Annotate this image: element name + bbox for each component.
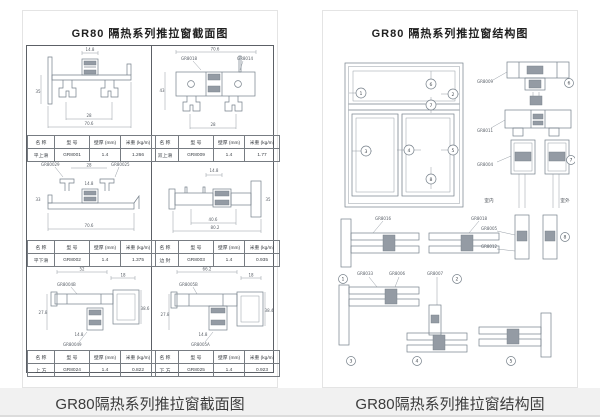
dimension-label: 33 <box>35 197 41 202</box>
dimension-label: 28 <box>86 113 92 118</box>
profile-drawing-gr8009: 70.6 GR8018 GR8014 43 28 <box>151 46 275 135</box>
profile-drawing-gr8003: 14.8 35 40.6 80.2 <box>151 159 275 240</box>
callout-label: GR8007 <box>427 271 444 276</box>
section-marker: 2 <box>456 277 459 283</box>
spec-cell-name: 下 方 <box>152 364 179 377</box>
callout-label: GR8016 <box>375 216 392 221</box>
dimension-label: 18 <box>120 273 126 278</box>
spec-header-thickness: 壁厚 (mm) <box>90 351 121 364</box>
section-marker: 6 <box>568 81 571 87</box>
spec-header-model: 型 号 <box>179 136 214 149</box>
section-marker: 1 <box>342 277 345 283</box>
spec-cell-name: 平上滑 <box>28 149 55 162</box>
dimension-label: 14.8 <box>210 168 219 173</box>
horizontal-sections-drawing: GR8016 GR8018 GR8005 GR8012 8 1 GR8033 G… <box>329 209 573 377</box>
svg-text:6: 6 <box>430 82 433 88</box>
spec-cell-model: GR8009 <box>179 149 214 162</box>
dimension-label: 28 <box>210 122 216 127</box>
spec-table-gr8024: 名 称 型 号 壁厚 (mm) 米重 (kg/m) 上 方 GR8024 1.4… <box>27 350 156 377</box>
spec-cell-name: 边 封 <box>152 254 179 267</box>
dimension-label: 14.8 <box>75 332 84 337</box>
dimension-label: 14.8 <box>85 181 94 186</box>
window-elevation-drawing: 1 2 3 4 5 6 7 8 <box>341 59 469 211</box>
section-marker: 4 <box>416 359 419 365</box>
room-side-label: 室内 <box>484 197 494 204</box>
dimension-label: 35 <box>265 197 271 202</box>
spec-header-name: 名 称 <box>28 241 55 254</box>
spec-header-model: 型 号 <box>55 136 90 149</box>
dimension-label: 14.8 <box>86 47 95 52</box>
spec-table-gr8002: 名 称 型 号 壁厚 (mm) 米重 (kg/m) 平下滑 GR8002 1.4… <box>27 240 156 267</box>
section-marker: 5 <box>510 359 513 365</box>
dimension-label: 38.4 <box>265 308 274 313</box>
svg-text:4: 4 <box>408 148 411 154</box>
spec-cell-weight: 0.935 <box>245 254 280 267</box>
dimension-label: 27.8 <box>161 312 170 317</box>
dimension-label: 70.6 <box>85 223 94 228</box>
spec-cell-model: GR8024 <box>55 364 90 377</box>
svg-text:8: 8 <box>430 177 433 183</box>
spec-header-model: 型 号 <box>55 351 90 364</box>
dimension-label: 52 <box>79 267 85 272</box>
svg-text:3: 3 <box>365 149 368 155</box>
callout-label: GR80025 <box>111 162 130 167</box>
spec-table-gr8001: 名 称 型 号 壁厚 (mm) 米重 (kg/m) 平上滑 GR8001 1.4… <box>27 135 156 162</box>
spec-header-model: 型 号 <box>179 241 214 254</box>
dimension-label: 38.6 <box>141 306 150 311</box>
callout-label: GR8005B <box>179 282 198 287</box>
section-marker: 8 <box>564 235 567 241</box>
profile-drawing-gr8024: 52 18 GR8004B 27.8 14.8 38.6 GR80049 <box>27 264 151 350</box>
spec-header-weight: 米重 (kg/m) <box>245 351 280 364</box>
section-diagram-image[interactable]: GR80 隔热系列推拉窗截面图 14.8 35 28 70.6 <box>22 10 278 388</box>
spec-header-name: 名 称 <box>28 136 55 149</box>
callout-label: GR8006 <box>389 271 406 276</box>
vertical-sections-drawing: GR8009 6 GR8011 GR8004 7 室内 室外 <box>475 56 575 214</box>
dimension-label: 18 <box>248 273 254 278</box>
dimension-label: 14.8 <box>199 332 208 337</box>
room-side-label: 室外 <box>560 197 570 204</box>
spec-header-model: 型 号 <box>55 241 90 254</box>
left-image-caption: GR80隔热系列推拉窗截面图 <box>0 393 300 414</box>
svg-text:2: 2 <box>452 92 455 98</box>
spec-cell-model: GR8001 <box>55 149 90 162</box>
elevation-marker: 1 2 3 4 5 6 7 8 <box>356 79 458 184</box>
dimension-label: 70.6 <box>85 121 94 126</box>
spec-header-thickness: 壁厚 (mm) <box>90 136 121 149</box>
callout-label: GR8005 <box>481 226 498 231</box>
spec-cell-model: GR8003 <box>179 254 214 267</box>
svg-text:5: 5 <box>452 148 455 154</box>
svg-text:1: 1 <box>360 91 363 97</box>
dimension-label: 40.6 <box>209 217 218 222</box>
spec-cell-name: 双上滑 <box>152 149 179 162</box>
spec-header-name: 名 称 <box>28 351 55 364</box>
svg-text:7: 7 <box>430 103 433 109</box>
callout-label: GR8014 <box>237 56 254 61</box>
dimension-label: 80.2 <box>211 225 220 230</box>
spec-table-gr8009: 名 称 型 号 壁厚 (mm) 米重 (kg/m) 双上滑 GR8009 1.4… <box>151 135 280 162</box>
callout-label: GR8004B <box>57 282 76 287</box>
spec-header-thickness: 壁厚 (mm) <box>90 241 121 254</box>
spec-table-gr8003: 名 称 型 号 壁厚 (mm) 米重 (kg/m) 边 封 GR8003 1.4… <box>151 240 280 267</box>
callout-label: GR8004 <box>477 162 494 167</box>
dimension-label: 66.2 <box>203 267 212 272</box>
spec-header-thickness: 壁厚 (mm) <box>214 351 245 364</box>
spec-header-thickness: 壁厚 (mm) <box>214 136 245 149</box>
profile-drawing-gr8001: 14.8 35 28 70.6 <box>27 46 151 135</box>
spec-header-name: 名 称 <box>152 136 179 149</box>
section-marker: 3 <box>350 359 353 365</box>
spec-cell-thickness: 1.4 <box>90 254 121 267</box>
spec-cell-thickness: 1.4 <box>90 149 121 162</box>
spec-cell-weight: 0.923 <box>245 364 280 377</box>
callout-label: GR8018 <box>471 216 488 221</box>
caption-strip: GR80隔热系列推拉窗截面图 GR80隔热系列推拉窗结构固 <box>0 388 600 417</box>
spec-header-name: 名 称 <box>152 351 179 364</box>
spec-header-name: 名 称 <box>152 241 179 254</box>
spec-cell-thickness: 1.4 <box>214 254 245 267</box>
right-panel-title: GR80 隔热系列推拉窗结构图 <box>323 25 577 41</box>
section-marker: 7 <box>570 158 573 164</box>
callout-label: GR80049 <box>63 342 82 347</box>
left-panel-title: GR80 隔热系列推拉窗截面图 <box>23 25 277 41</box>
spec-table-gr8025: 名 称 型 号 壁厚 (mm) 米重 (kg/m) 下 方 GR8025 1.4… <box>151 350 280 377</box>
callout-label: GR8009 <box>477 79 494 84</box>
structure-diagram-image[interactable]: GR80 隔热系列推拉窗结构图 1 2 3 4 5 6 7 8 <box>322 10 578 388</box>
spec-cell-thickness: 1.4 <box>214 149 245 162</box>
callout-label: GR8018 <box>181 56 198 61</box>
section-grid-frame: 14.8 35 28 70.6 70.6 GR8018 GR8014 <box>26 45 274 373</box>
profile-drawing-gr8025: 66.2 18 GR8005B 27.8 14.8 38.4 GR8005A <box>151 264 275 350</box>
spec-header-model: 型 号 <box>179 351 214 364</box>
callout-label: GR8033 <box>357 271 374 276</box>
spec-cell-thickness: 1.4 <box>90 364 121 377</box>
spec-cell-model: GR8025 <box>179 364 214 377</box>
spec-header-thickness: 壁厚 (mm) <box>214 241 245 254</box>
dimension-label: 43 <box>159 88 165 93</box>
spec-cell-name: 平下滑 <box>28 254 55 267</box>
callout-label: GR8011 <box>477 128 494 133</box>
spec-cell-weight: 1.77 <box>245 149 280 162</box>
spec-cell-name: 上 方 <box>28 364 55 377</box>
spec-cell-thickness: 1.4 <box>214 364 245 377</box>
dimension-label: 35 <box>35 89 41 94</box>
spec-header-weight: 米重 (kg/m) <box>245 241 280 254</box>
spec-cell-model: GR8002 <box>55 254 90 267</box>
dimension-label: 27.8 <box>39 310 48 315</box>
callout-label: GR80029 <box>41 162 60 167</box>
profile-drawing-gr8002: GR80029 GR80025 28 14.8 33 70.6 <box>27 159 151 240</box>
dimension-label: 70.6 <box>211 47 220 52</box>
callout-label: GR8005A <box>191 342 210 347</box>
right-image-caption: GR80隔热系列推拉窗结构固 <box>300 393 600 414</box>
spec-header-weight: 米重 (kg/m) <box>245 136 280 149</box>
callout-label: GR8012 <box>481 244 498 249</box>
dimension-label: 28 <box>86 163 92 168</box>
